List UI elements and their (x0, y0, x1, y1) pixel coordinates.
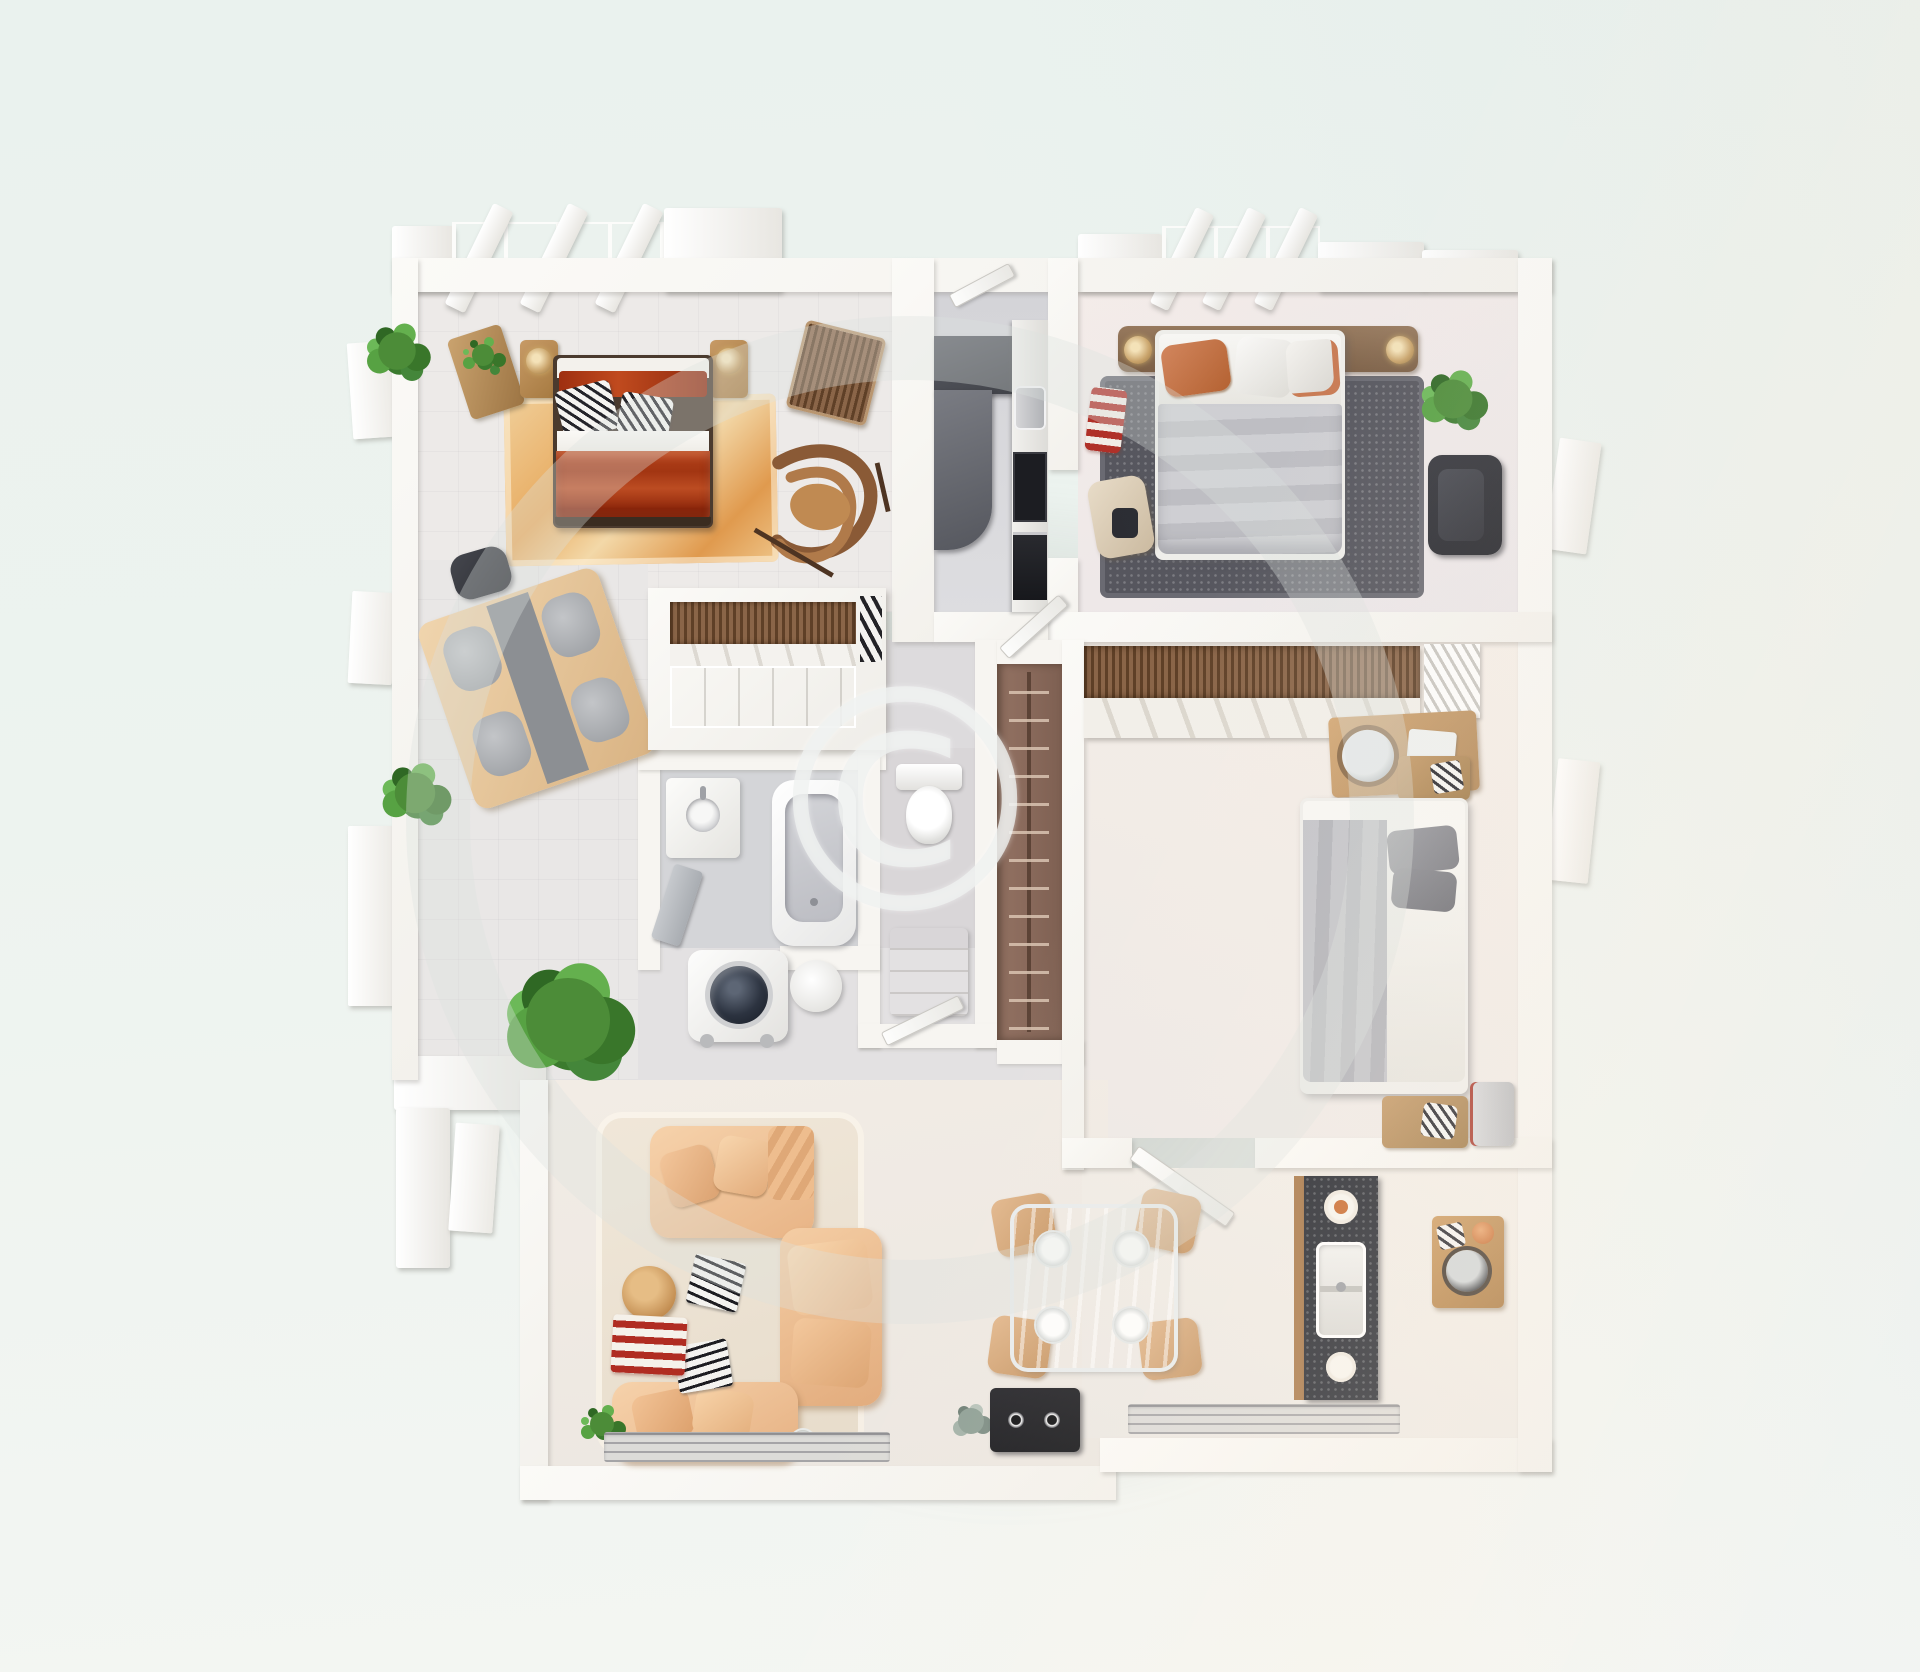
wall-kitchen-bedroom2-a (1048, 258, 1078, 470)
console-plant (472, 344, 494, 366)
prep-table-wood (1432, 1216, 1504, 1308)
sliding-door-track (1128, 1404, 1400, 1434)
bathtub-drain (810, 898, 818, 906)
desk-round-mirror (1341, 729, 1396, 784)
bedroom2-plant (1434, 380, 1473, 419)
armchair-cushion (1438, 469, 1484, 541)
window-sill (448, 1123, 499, 1234)
sink-faucet (1336, 1282, 1346, 1292)
bed2-white-pillow (1285, 338, 1341, 397)
vanity-sink (666, 778, 740, 858)
washer-wheel (700, 1034, 714, 1048)
washer-wheel (760, 1034, 774, 1048)
patterned-cloth (1436, 1222, 1466, 1251)
chaise-cushion (786, 1237, 874, 1316)
leaning-books (860, 596, 882, 662)
living-plant-large (526, 978, 610, 1062)
media-unit-black (990, 1388, 1080, 1452)
plate (1036, 1308, 1070, 1342)
wall-bedroom2-bottom (1048, 612, 1552, 642)
sofa-throw (768, 1126, 814, 1200)
bed-red-duvet (556, 451, 710, 519)
plate (1114, 1232, 1148, 1266)
sliding-door-track (604, 1432, 890, 1462)
wardrobe-shelf-band (670, 644, 856, 666)
wall-left (392, 258, 418, 1080)
bedroom3-slatted-wardrobe (1084, 646, 1420, 698)
wall-bath-top (638, 748, 886, 770)
closet-corridor (997, 664, 1062, 1040)
plate (1036, 1232, 1070, 1266)
bed-footboard (555, 517, 711, 526)
dishwasher-black (1013, 532, 1047, 600)
wall-bottom-left (520, 1466, 1116, 1500)
washing-machine (688, 950, 788, 1042)
bedroom2-lamp-right (1386, 336, 1414, 364)
round-side-table (790, 960, 842, 1012)
granite-counter (1304, 1176, 1378, 1400)
bed2-gray-duvet (1158, 404, 1342, 554)
gray-plant (958, 1408, 984, 1434)
tote-bag-dark (1112, 508, 1138, 538)
toilet (896, 764, 962, 852)
table-lamp-right (716, 348, 742, 374)
bedroom3-nightstand-top (1398, 756, 1470, 800)
counter-plate (1326, 1352, 1356, 1382)
bedroom3-nightstand-bottom (1382, 1096, 1468, 1148)
floor-plan-image: © (0, 0, 1920, 1672)
bedroom3-bed (1300, 798, 1468, 1094)
orange-bowl (1472, 1222, 1494, 1244)
bed3-pillow-dark (1386, 824, 1460, 875)
sofa-back-seat (650, 1126, 814, 1238)
hall-plant (395, 773, 436, 814)
bed3-gray-blanket (1303, 820, 1387, 1082)
wall-bottom-right (1100, 1438, 1552, 1472)
wall-wc-bottom (858, 1024, 997, 1048)
wall-bedroom3-bottom-a (1062, 1138, 1132, 1168)
wall-left-lower (520, 1080, 548, 1500)
coffee-table-round (622, 1266, 676, 1320)
rocking-chair (738, 418, 908, 591)
patterned-art (1420, 1102, 1458, 1140)
cooktop-black (1013, 452, 1047, 522)
washer-door (710, 966, 768, 1024)
media-knob (1044, 1412, 1060, 1428)
counter-wood-edge (1294, 1176, 1304, 1400)
glass-dining-table (1014, 1208, 1174, 1368)
sofa-pillow (712, 1134, 775, 1199)
table-lamp-left (526, 348, 552, 374)
leaning-boards (1424, 644, 1480, 718)
wardrobe-slat-panel (670, 602, 856, 644)
master-bed (553, 355, 713, 528)
toilet-bowl (906, 786, 952, 844)
chaise-cushion (790, 1317, 872, 1388)
sofa-chaise (780, 1228, 882, 1406)
window-sill (348, 826, 394, 1006)
toaster-silver (1014, 386, 1046, 430)
hall-wardrobe-unit (648, 588, 886, 750)
sink-bowl (686, 798, 720, 832)
wardrobe-open-shelf (670, 666, 856, 728)
sink-faucet (700, 786, 706, 800)
media-knob (1008, 1412, 1024, 1428)
kitchen-counter-curve (934, 390, 992, 550)
pan-mirror (1446, 1250, 1488, 1292)
double-sink (1316, 1242, 1366, 1338)
patterned-box (1430, 760, 1465, 795)
bedroom2-bed (1155, 330, 1345, 560)
master-sill-plant (378, 332, 416, 370)
wall-wc-right (975, 640, 997, 1048)
counter-plate-food (1334, 1200, 1348, 1214)
hangers (1009, 674, 1049, 1030)
bed3-headboard (1303, 801, 1465, 821)
window-sill (348, 591, 397, 685)
balcony-block (396, 1108, 450, 1268)
bedroom2-armchair-black (1428, 455, 1502, 555)
wall-bath-wc-sep (858, 748, 880, 1048)
bed2-orange-pillow (1160, 338, 1233, 399)
wall-right (1518, 258, 1552, 1472)
plate (1114, 1308, 1148, 1342)
bed3-pillow-dark (1390, 867, 1457, 912)
magazine (685, 1253, 746, 1313)
striped-rug-red (611, 1314, 688, 1376)
wall-bedroom3-left (1062, 640, 1084, 1170)
bathtub (772, 780, 856, 946)
bedroom2-lamp-left (1124, 336, 1152, 364)
mini-fridge (1470, 1082, 1514, 1146)
